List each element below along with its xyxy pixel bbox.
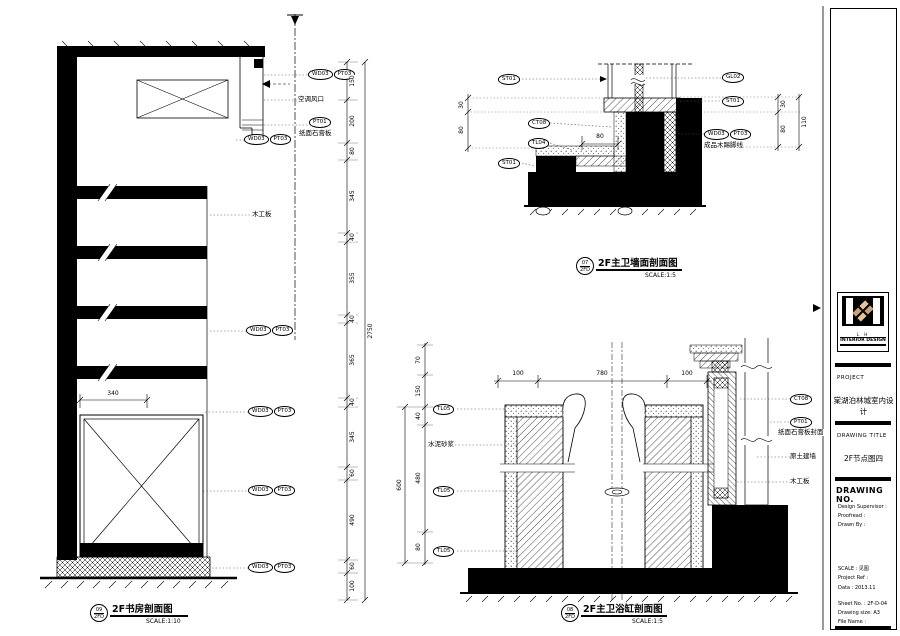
note-gypsum-board: 纸面石膏板 <box>299 130 332 137</box>
material-tag: WD03 <box>246 325 271 336</box>
dim: 100 <box>511 371 524 377</box>
note-wood-board: 木工板 <box>790 478 810 485</box>
material-tag: ST01 <box>722 96 744 107</box>
dim: 40 <box>350 314 356 324</box>
dim: 30 <box>781 99 787 109</box>
field-scale: SCALE : 见图 <box>838 565 869 572</box>
callout-st01: ST01 <box>498 158 520 169</box>
material-tag: WD03 <box>248 406 273 417</box>
field-sheet-no: Sheet No. : 2F-D-04 <box>838 601 887 607</box>
material-tag: TL05 <box>433 546 454 557</box>
dim-340: 340 <box>106 391 119 397</box>
material-tag: WD03 <box>248 485 273 496</box>
callout-tl05: TL05 <box>433 486 454 497</box>
detail-ref-bubble: 092FD <box>90 604 108 622</box>
tub-drawing-scale: SCALE:1:5 <box>632 618 663 625</box>
dim: 365 <box>350 353 356 366</box>
material-tag: PT03 <box>274 562 296 573</box>
material-tag: TL05 <box>433 486 454 497</box>
dim: 60 <box>350 468 356 478</box>
wall-drawing-title: 2F主卫墙面剖面图 <box>598 255 678 269</box>
field-file-name: File Name : <box>838 619 866 625</box>
title-block: L H INTERIOR DESIGN PROJECT 棠湖泊林城室内设计 DR… <box>830 8 897 630</box>
logo-brand-name: INTERIOR DESIGN <box>840 337 886 346</box>
dim: 200 <box>350 114 356 127</box>
callout-ct08: CT08 <box>790 394 812 405</box>
material-tag: PT01 <box>790 417 812 428</box>
dim: 30 <box>459 100 465 110</box>
dim: 100 <box>680 371 693 377</box>
dim: 40 <box>416 411 422 421</box>
drawing-no-label: DRAWING NO. <box>836 486 896 504</box>
dim: 40 <box>350 232 356 242</box>
callout-wd03-pt03: WD03PT03 <box>246 325 293 336</box>
dim: 80 <box>416 542 422 552</box>
callout-wd03-pt03: WD03PT03 <box>704 129 751 140</box>
material-tag: PT03 <box>730 129 752 140</box>
material-tag: CT08 <box>790 394 812 405</box>
study-drawing-scale: SCALE:1:10 <box>146 618 181 625</box>
company-logo: L H INTERIOR DESIGN <box>837 292 889 352</box>
dim: 40 <box>350 397 356 407</box>
divider-bar <box>835 477 891 481</box>
material-tag: GL02 <box>722 72 744 83</box>
note-wood-skirting: 成品木踢脚线 <box>704 142 743 149</box>
callout-tl05: TL05 <box>433 404 454 415</box>
drawing-title-value: 2F节点图四 <box>831 453 896 464</box>
dim: 70 <box>416 355 422 365</box>
callout-tl05: TL05 <box>433 546 454 557</box>
material-tag: ST01 <box>498 74 520 85</box>
dim: 150 <box>350 74 356 87</box>
material-tag: WD03 <box>244 134 269 145</box>
dim: 355 <box>350 271 356 284</box>
dim: 345 <box>350 189 356 202</box>
note-gypsum-cover: 纸面石膏板封面 <box>778 429 824 436</box>
detail-ref-bubble: 072FD <box>576 257 594 275</box>
material-tag: CT08 <box>528 118 550 129</box>
field-data: Data : 2013.11 <box>838 585 876 591</box>
wall-drawing-scale: SCALE:1:5 <box>645 272 676 279</box>
material-tag: PT03 <box>274 406 296 417</box>
material-tag: PT01 <box>309 117 331 128</box>
dim-total: 600 <box>397 478 403 491</box>
logo-emblem <box>841 295 885 333</box>
material-tag: ST01 <box>498 158 520 169</box>
project-label: PROJECT <box>837 375 864 381</box>
note-original-wall: 原土建墙 <box>790 453 816 460</box>
title-underline <box>596 269 682 271</box>
fold-mark <box>813 304 821 312</box>
divider-bar <box>835 363 891 367</box>
note-wood-board: 木工板 <box>252 211 272 218</box>
material-tag: WD03 <box>704 129 729 140</box>
field-project-ref: Project Ref : <box>838 575 868 581</box>
callout-wd03-pt03: WD03PT03 <box>248 406 295 417</box>
dim-total: 110 <box>802 115 808 128</box>
callout-st01: ST01 <box>498 74 520 85</box>
field-proofread: Proofread : <box>838 513 865 519</box>
study-drawing-title: 2F书房剖面图 <box>112 601 173 615</box>
dim-80: 80 <box>595 134 605 140</box>
drawing-sheet: WD03PT03 空调风口 PT01 纸面石膏板 WD03PT03 木工板 WD… <box>0 0 900 636</box>
tub-section-linework <box>397 338 798 602</box>
callout-ct08: CT08 <box>528 118 550 129</box>
detail-ref-bubble: 082FD <box>561 604 579 622</box>
dim: 100 <box>350 579 356 592</box>
wall-section-linework <box>465 64 802 215</box>
project-name: 棠湖泊林城室内设计 <box>831 395 896 417</box>
material-tag: PT03 <box>272 325 294 336</box>
dim: 60 <box>350 561 356 571</box>
callout-pt01: PT01 <box>309 117 331 128</box>
dim: 490 <box>350 513 356 526</box>
callout-gl02: GL02 <box>722 72 744 83</box>
field-design-supervisor: Design Supervisor : <box>838 504 887 510</box>
dim: 150 <box>416 384 422 397</box>
material-tag: PT03 <box>274 485 296 496</box>
divider-bar <box>835 421 891 425</box>
tub-drawing-title: 2F主卫浴缸剖面图 <box>583 601 663 615</box>
dim: 780 <box>595 371 608 377</box>
title-underline <box>581 615 667 617</box>
callout-wd03-pt03: WD03PT03 <box>244 134 291 145</box>
dim: 80 <box>781 124 787 134</box>
dim: 345 <box>350 430 356 443</box>
title-underline <box>110 615 188 617</box>
callout-tl04: TL04 <box>528 138 549 149</box>
material-tag: PT03 <box>270 134 292 145</box>
linework-layer <box>0 0 900 636</box>
callout-pt01: PT01 <box>790 417 812 428</box>
material-tag: WD03 <box>248 562 273 573</box>
callout-wd03-pt03: WD03PT03 <box>248 485 295 496</box>
callout-st01: ST01 <box>722 96 744 107</box>
note-cement-mortar: 水泥砂浆 <box>428 441 454 448</box>
dim: 480 <box>416 471 422 484</box>
dim-total: 2750 <box>368 322 374 339</box>
dim: 80 <box>350 146 356 156</box>
material-tag: WD03 <box>308 69 333 80</box>
drawing-title-label: DRAWING TITLE <box>837 433 887 439</box>
dim: 80 <box>459 125 465 135</box>
field-drawing-size: Drawing size: A3 <box>838 610 880 616</box>
note-ac-vent: 空调风口 <box>298 96 324 103</box>
material-tag: TL04 <box>528 138 549 149</box>
divider-bar <box>835 626 891 630</box>
material-tag: TL05 <box>433 404 454 415</box>
callout-wd03-pt03: WD03PT03 <box>248 562 295 573</box>
field-drawn-by: Drawn By : <box>838 522 865 528</box>
